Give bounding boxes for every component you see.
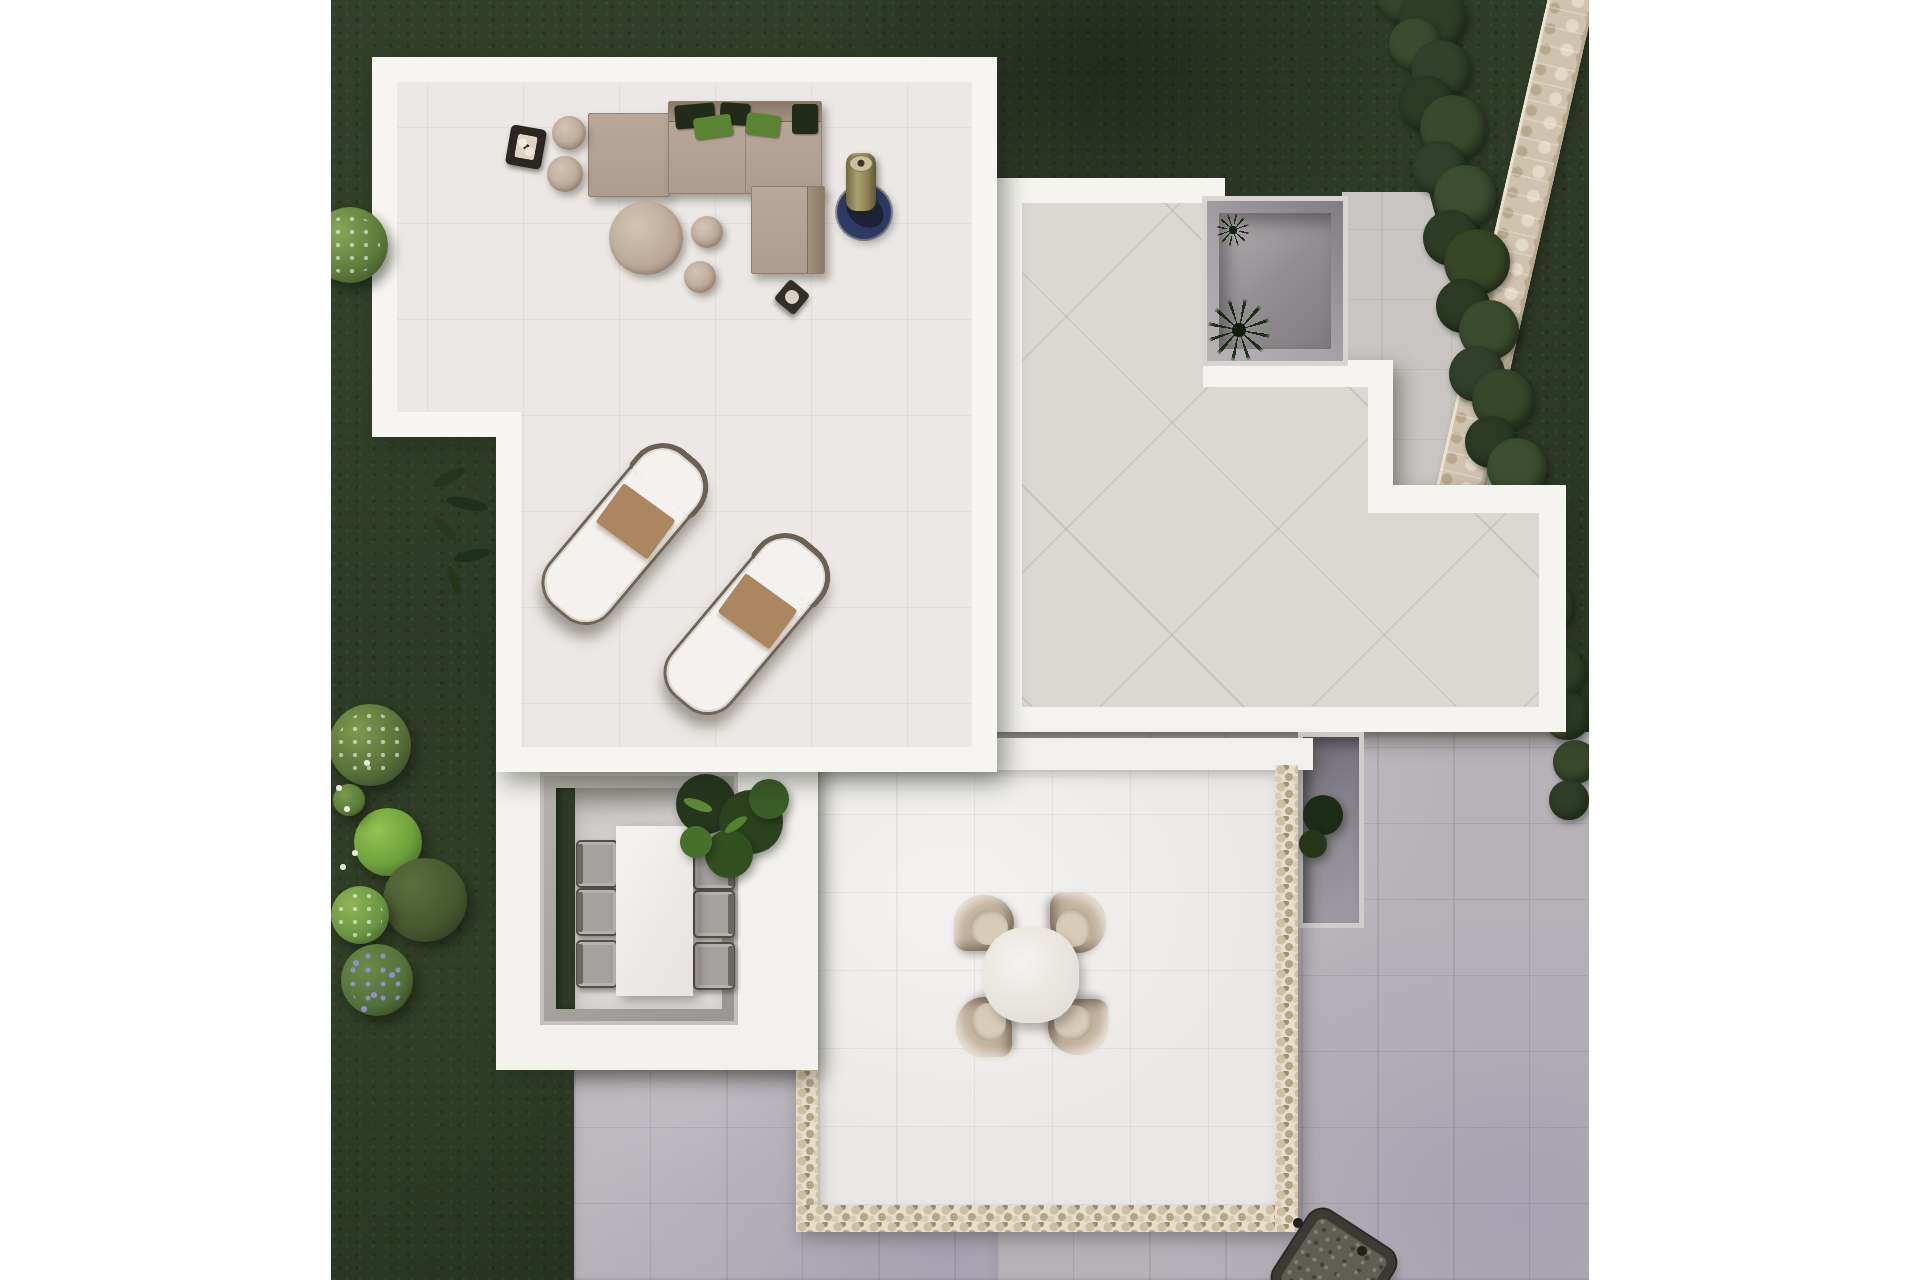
aerial-villa-render: Aerial 3D render of a modern villa with …: [0, 0, 1920, 1280]
fire-pit-grill: [1266, 1203, 1401, 1280]
fire-pit-foot: [1293, 1218, 1303, 1228]
fire-pit-layer: [331, 0, 1589, 1280]
fire-pit-foot: [1357, 1246, 1367, 1256]
render-content: [331, 0, 1589, 1280]
